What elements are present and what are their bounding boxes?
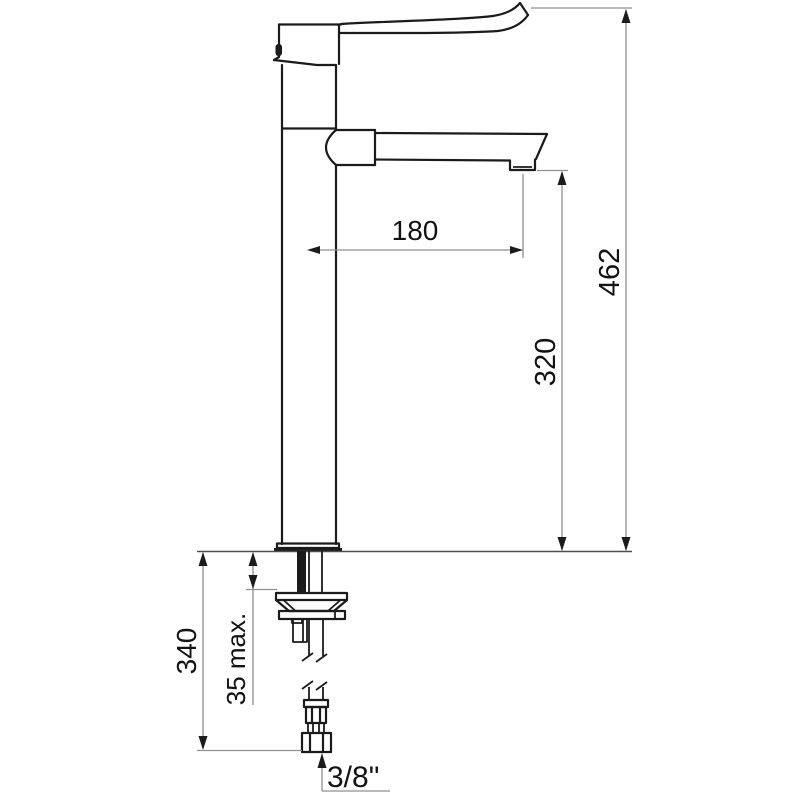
arrowhead-down xyxy=(199,736,208,750)
arrowhead-up xyxy=(622,9,631,23)
connector-nut xyxy=(302,733,331,752)
dim-label-180: 180 xyxy=(392,215,439,246)
hose-connector xyxy=(302,700,331,752)
dimension-supply-connection: 3/8" xyxy=(318,753,391,794)
hose-break-marks xyxy=(302,653,327,690)
swivel-collar-nose xyxy=(326,130,336,165)
arrowhead-left xyxy=(307,246,320,254)
mounting-nut xyxy=(279,611,345,623)
arrowhead-down xyxy=(622,537,631,551)
dimension-overall-height: 462 xyxy=(531,8,632,551)
lever-handle xyxy=(274,3,528,65)
dim-label-3-8-inch: 3/8" xyxy=(327,761,379,794)
arrowhead-down xyxy=(249,575,258,589)
arrowhead-up xyxy=(318,753,327,768)
arrowhead-up xyxy=(249,552,258,566)
temperature-indicator-dot xyxy=(276,44,283,56)
dimension-deck-thickness: 35 max. xyxy=(221,552,277,705)
base-flange xyxy=(274,544,342,552)
supply-hose xyxy=(293,619,327,700)
technical-drawing: 180 462 320 340 35 max. 3/8" xyxy=(0,0,800,800)
arrowhead-down xyxy=(558,537,567,551)
arrowhead-up xyxy=(199,552,208,566)
dimension-outlet-height: 320 xyxy=(530,171,568,552)
mounting-washer xyxy=(276,593,347,611)
arrowhead-up xyxy=(558,171,567,185)
spout xyxy=(326,130,547,170)
dim-label-35-max: 35 max. xyxy=(221,613,251,706)
threaded-shank xyxy=(297,551,322,593)
dimension-spout-reach: 180 xyxy=(307,174,523,258)
arrowhead-right xyxy=(510,246,523,254)
dim-label-320: 320 xyxy=(530,338,562,386)
aerator xyxy=(510,160,535,171)
faucet-body xyxy=(282,65,336,544)
dim-label-340: 340 xyxy=(171,628,202,675)
faucet-outline xyxy=(197,3,632,752)
dim-label-462: 462 xyxy=(594,248,626,296)
